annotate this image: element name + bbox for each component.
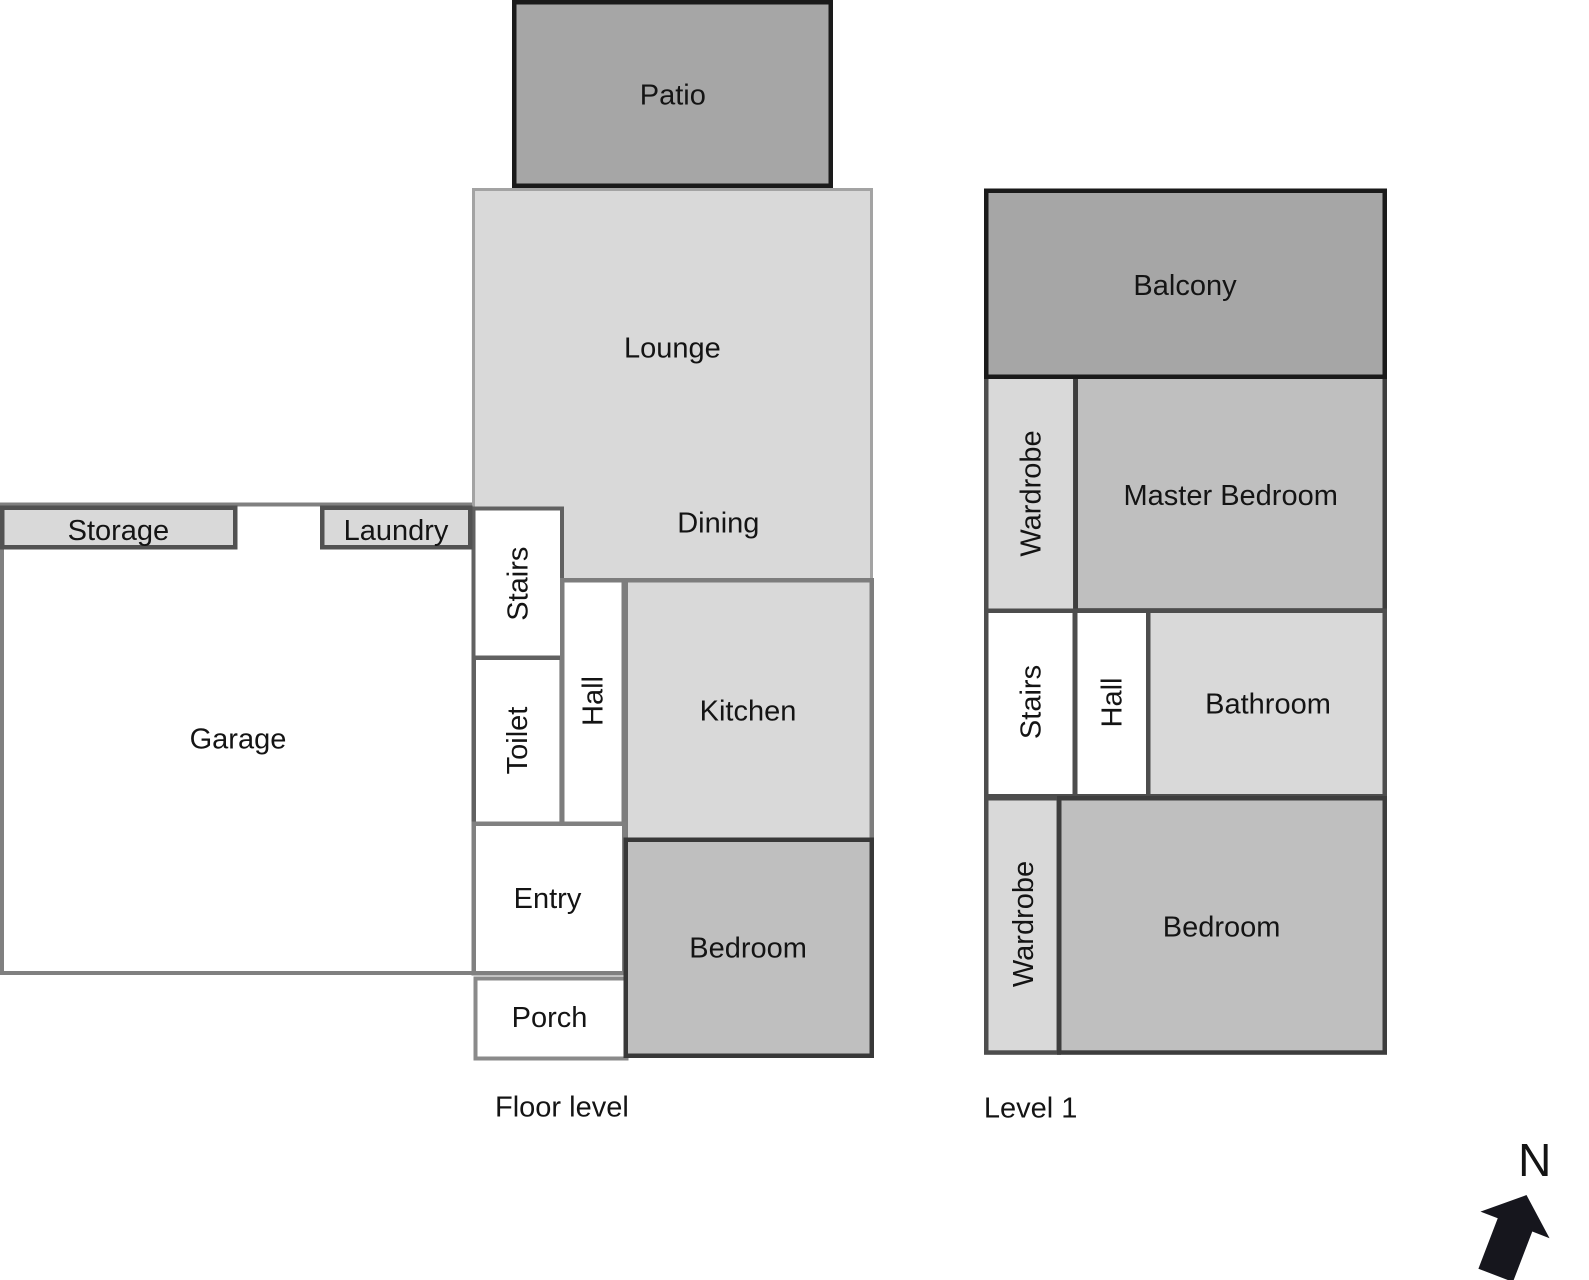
svg-text:Dining: Dining (677, 508, 759, 540)
svg-text:Bathroom: Bathroom (1205, 689, 1331, 721)
svg-text:Wardrobe: Wardrobe (1008, 861, 1040, 987)
svg-text:Storage: Storage (68, 515, 170, 547)
svg-text:Hall: Hall (1096, 678, 1128, 728)
svg-text:Kitchen: Kitchen (700, 696, 797, 728)
svg-text:Bedroom: Bedroom (689, 933, 807, 965)
svg-text:Level 1: Level 1 (984, 1093, 1078, 1125)
svg-text:Patio: Patio (640, 79, 706, 111)
svg-text:Porch: Porch (512, 1002, 588, 1034)
svg-text:Laundry: Laundry (344, 515, 449, 547)
svg-text:Hall: Hall (577, 676, 609, 726)
svg-text:Floor level: Floor level (495, 1091, 629, 1123)
svg-text:Toilet: Toilet (502, 707, 534, 775)
svg-text:Wardrobe: Wardrobe (1016, 430, 1048, 556)
svg-text:Stairs: Stairs (502, 547, 534, 621)
svg-text:Balcony: Balcony (1133, 270, 1237, 302)
svg-text:Entry: Entry (514, 883, 582, 915)
svg-text:Bedroom: Bedroom (1163, 912, 1281, 944)
svg-text:Garage: Garage (190, 724, 287, 756)
svg-text:Lounge: Lounge (624, 333, 721, 365)
svg-text:Stairs: Stairs (1015, 665, 1047, 739)
svg-text:Master Bedroom: Master Bedroom (1124, 480, 1338, 512)
svg-text:N: N (1518, 1134, 1551, 1186)
